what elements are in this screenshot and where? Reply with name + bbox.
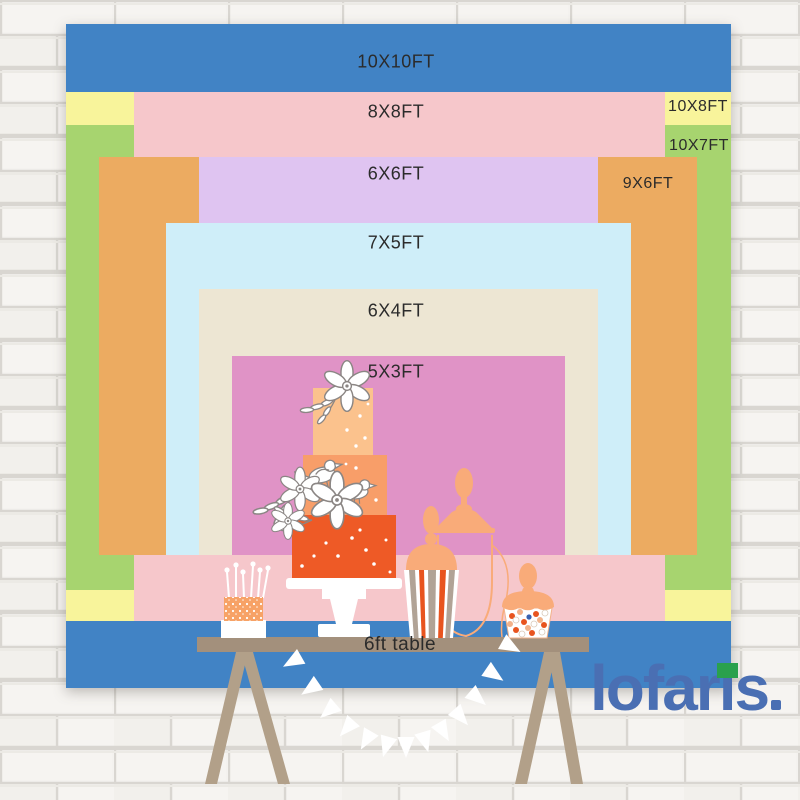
pennant-flag xyxy=(301,676,323,695)
pennant-flag xyxy=(340,715,360,736)
pennant-flag xyxy=(361,727,379,749)
mini-cake-with-candles xyxy=(221,561,271,638)
pennant-flag xyxy=(431,719,449,741)
table-size-label: 6ft table xyxy=(364,634,436,656)
logo-green-mark xyxy=(717,663,738,678)
cake-stand xyxy=(286,578,402,637)
candle-tips xyxy=(224,561,270,574)
table-trestle-legs xyxy=(205,652,583,784)
logo-letter-l: l xyxy=(590,656,606,720)
pennant-flag xyxy=(481,662,503,681)
logo-letter-f: f xyxy=(643,656,662,720)
logo-letter-o: o xyxy=(606,656,643,720)
pennant-flag xyxy=(381,735,397,758)
tiered-wedding-cake xyxy=(251,361,402,637)
logo-letter-s: s xyxy=(734,656,768,720)
logo-letter-a: a xyxy=(662,656,696,720)
backdrop-size-chart-poster: 10X10FT10X8FT10X7FT8X8FT9X6FT6X6FT7X5FT6… xyxy=(0,0,800,800)
logo-wordmark: lofaris xyxy=(590,652,768,724)
logo-letter-r: r xyxy=(696,656,719,720)
pennant-flag xyxy=(398,737,415,758)
pennant-flag xyxy=(448,704,468,725)
pennant-flag xyxy=(465,685,487,705)
logo-dot xyxy=(771,700,781,710)
pennant-flag xyxy=(320,698,342,718)
logo-letter-i: i xyxy=(719,656,735,720)
brand-logo: lofaris xyxy=(590,656,781,720)
candy-cup xyxy=(502,563,554,638)
pennant-flag xyxy=(414,730,430,753)
